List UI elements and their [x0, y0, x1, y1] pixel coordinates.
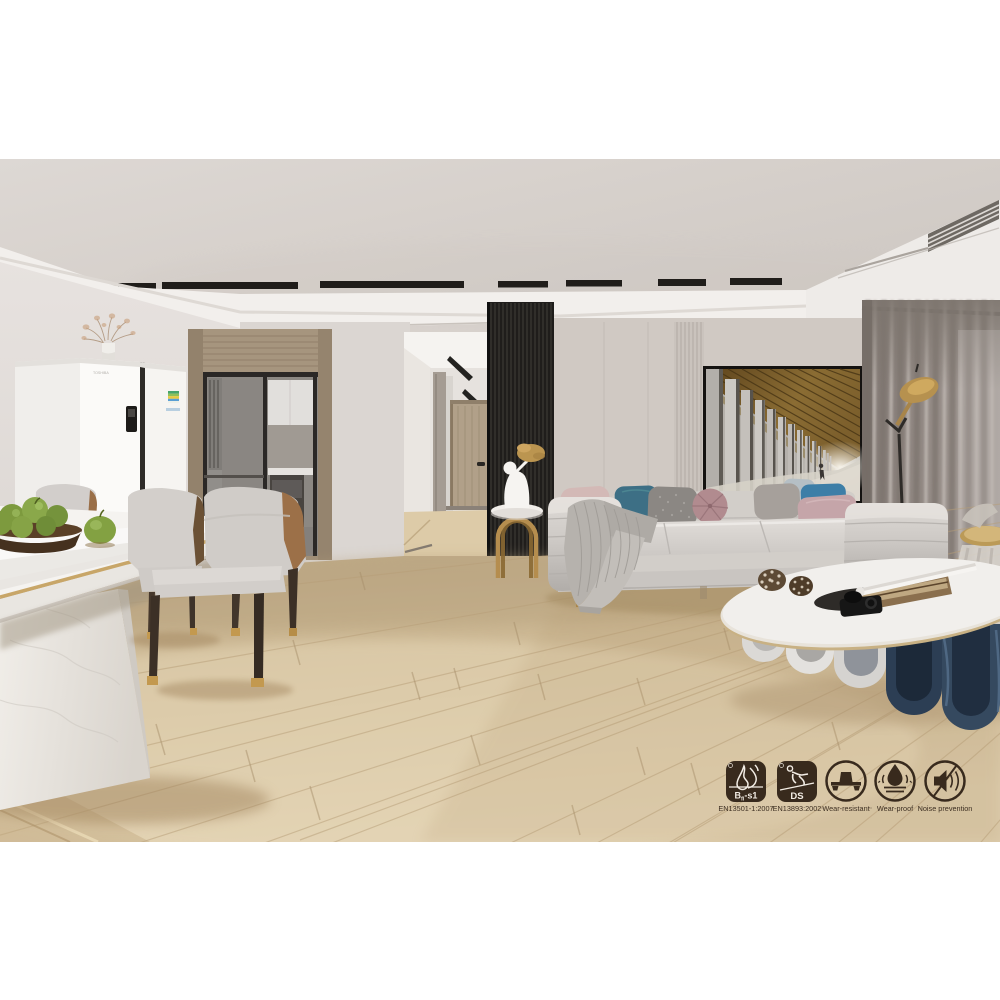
- svg-text:DS: DS: [790, 791, 803, 802]
- svg-text:EN13501-1:2007: EN13501-1:2007: [718, 804, 773, 813]
- svg-text:EN13893:2002: EN13893:2002: [773, 804, 822, 813]
- svg-text:Noise prevention: Noise prevention: [918, 804, 973, 813]
- svg-text:TOSHIBA: TOSHIBA: [93, 371, 109, 375]
- svg-text:Wear-resistant: Wear-resistant: [822, 804, 869, 813]
- svg-text:Wear-proof: Wear-proof: [877, 804, 914, 813]
